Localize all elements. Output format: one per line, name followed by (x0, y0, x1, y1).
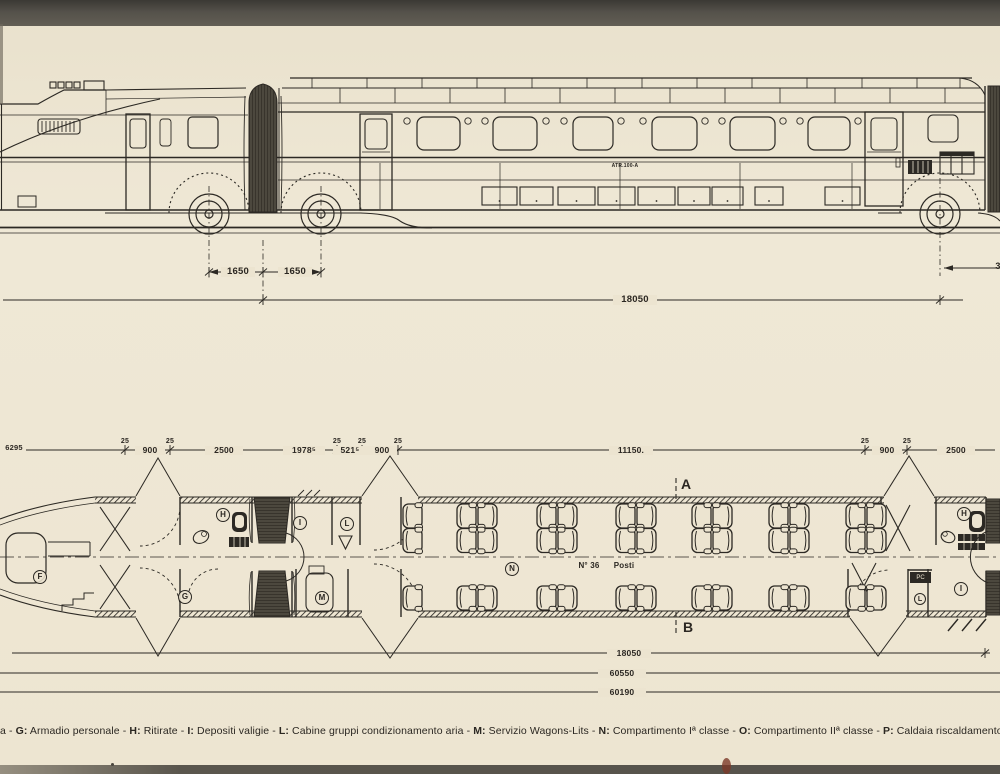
dim-25: 25 (162, 438, 178, 445)
dim-chain-11150: 11150. (609, 446, 653, 455)
total-60190: 60190 (598, 688, 646, 697)
dim-25: 25 (117, 438, 133, 445)
plan-dimension-chain (26, 445, 995, 455)
line-art (0, 0, 1000, 774)
lower-panel-seams (380, 163, 852, 209)
entrance-door-right (865, 112, 903, 206)
legend-key: N: (599, 725, 610, 737)
seats-word: Posti (607, 562, 641, 570)
room-letter-g: G (178, 590, 192, 604)
legend-key: M: (473, 725, 485, 737)
scan-top-edge (0, 0, 1000, 26)
legend-key: H: (129, 725, 140, 737)
power-car-tail (0, 81, 248, 210)
underframe-boxes (482, 187, 860, 205)
legend-caption: a - G: Armadio personale - H: Ritirate -… (0, 725, 1000, 740)
dim-25: 25 (354, 438, 370, 445)
scanned-page: 1650 1650 18050 3 ATR.100-A 6295 25 25 2… (0, 0, 1000, 774)
dim-25: 25 (899, 438, 915, 445)
elevation-drawing (0, 78, 1000, 306)
clerestory-seams (340, 88, 945, 103)
dim-chain-521: 521⁵ (333, 446, 367, 455)
room-letter-h-left: H (216, 508, 230, 522)
elevation-dimensions (3, 178, 1000, 306)
speck (111, 763, 114, 766)
wheel-arches (169, 173, 980, 213)
legend-key: L: (279, 725, 289, 737)
dim-chain-900c: 900 (872, 446, 902, 455)
total-60550: 60550 (598, 669, 646, 678)
dim-axle-right: 1650 (278, 267, 312, 277)
dim-axle-left: 1650 (221, 267, 255, 277)
dim-chain-900a: 900 (135, 446, 165, 455)
dim-chain-1978: 1978⁵ (283, 446, 325, 455)
total-dimension-lines (0, 648, 1000, 692)
dim-chain-2500b: 2500 (937, 446, 975, 455)
luggage-and-service-fittings (306, 536, 352, 612)
dim-left-partial: 6295 (0, 444, 28, 452)
bogie-frames (105, 213, 1000, 228)
vent-circles (404, 118, 861, 124)
side-grille-dark (908, 160, 932, 174)
scan-left-edge (0, 24, 3, 104)
room-letter-f: F (33, 570, 47, 584)
dim-25: 25 (390, 438, 406, 445)
ink-stain (722, 758, 731, 774)
pc-label: PC (916, 575, 924, 581)
louver-grille (42, 121, 74, 132)
dim-25: 25 (857, 438, 873, 445)
floor-plan-drawing (0, 445, 1000, 692)
room-letter-m: M (315, 591, 329, 605)
unit-label: ATR.100-A (604, 164, 646, 169)
dim-chain-900b: 900 (367, 446, 397, 455)
scan-bottom-edge (0, 765, 1000, 774)
dim-body-length: 18050 (613, 295, 657, 305)
gangway-bellows-elevation (244, 84, 282, 212)
legend-key: I: (187, 725, 194, 737)
room-letter-l-left: L (340, 517, 354, 531)
room-letter-h-right: H (957, 507, 971, 521)
dim-25: 25 (329, 438, 345, 445)
section-marker-a: A (681, 477, 691, 491)
seats-count: N° 36 (570, 562, 608, 570)
legend-key: G: (16, 725, 28, 737)
section-marker-b: B (683, 620, 693, 634)
legend-key: O: (739, 725, 751, 737)
pc-cabinet: PC (910, 572, 931, 583)
dim-chain-2500a: 2500 (205, 446, 243, 455)
room-letter-i-right: I (954, 582, 968, 596)
side-grille-tripart (940, 152, 974, 174)
roof-panel-seams (312, 78, 960, 88)
gangway-bellows-right-edge (988, 86, 1000, 212)
total-18050: 18050 (607, 649, 651, 658)
room-letter-l-right: L (914, 593, 926, 605)
dim-right-partial: 3 (990, 262, 1000, 271)
room-letter-i-left: I (293, 516, 307, 530)
legend-key: P: (883, 725, 894, 737)
room-letter-n: N (505, 562, 519, 576)
